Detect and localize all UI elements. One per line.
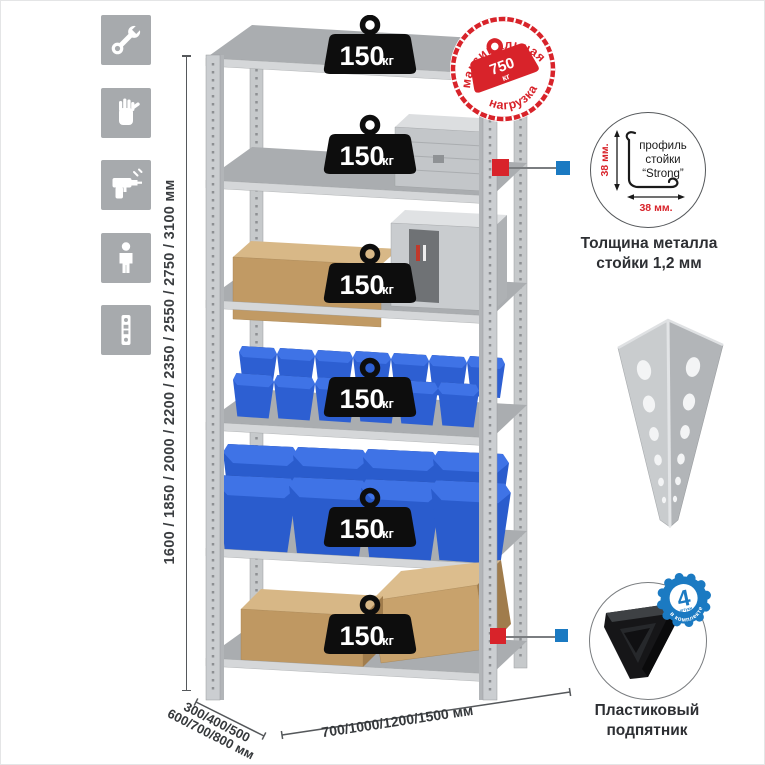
profile-dim-vertical: 38 мм. (599, 143, 611, 176)
callout-line-top (503, 167, 561, 169)
drill-icon (106, 165, 146, 205)
profile-caption-line1: Толщина металла (573, 234, 725, 254)
corner-profile-image (598, 312, 743, 537)
product-infographic-page: { "colors": {"accent_red": "#d8232a", "a… (0, 0, 765, 765)
max-load-stamp: максимальная нагрузка 750 кг (438, 5, 568, 135)
profile-label-1: профиль (639, 140, 687, 152)
base-dimension-annotations: 300/400/500 600/700/800 мм 700/1000/1200… (155, 682, 585, 765)
callout-marker-red-top (492, 159, 509, 176)
weight-value: 150 (339, 384, 384, 414)
weight-value: 150 (339, 621, 384, 651)
weight-badge-1: 150 кг (324, 18, 416, 75)
wrench-icon (106, 20, 146, 60)
weight-unit: кг (382, 526, 395, 541)
callout-marker-blue-top (556, 161, 570, 175)
weight-unit: кг (382, 282, 395, 297)
tile-perforated-profile (101, 305, 151, 355)
profile-label-2: стойки (645, 154, 680, 166)
foot-caption-line2: подпятник (578, 721, 716, 741)
weight-value: 150 (339, 270, 384, 300)
height-dimension-label: 1600 / 1850 / 2000 / 2200 / 2350 / 2550 … (162, 180, 178, 565)
profile-callout-circle: 38 мм. 38 мм. профиль стойки “Strong” (590, 112, 706, 228)
weight-unit: кг (382, 396, 395, 411)
person-icon (106, 238, 146, 278)
profile-cross-section-drawing: 38 мм. 38 мм. профиль стойки “Strong” (591, 113, 705, 227)
weight-unit: кг (382, 633, 395, 648)
weight-value: 150 (339, 514, 384, 544)
profile-label-3: “Strong” (642, 168, 684, 180)
width-dimension-label: 700/1000/1200/1500 мм (320, 702, 474, 740)
weight-value: 150 (339, 141, 384, 171)
tile-wrench (101, 15, 151, 65)
perforated-profile-icon (106, 310, 146, 350)
profile-caption-line2: стойки 1,2 мм (573, 254, 725, 274)
profile-caption: Толщина металла стойки 1,2 мм (573, 234, 725, 274)
height-dimension-line (186, 55, 187, 691)
weight-value: 150 (339, 41, 384, 71)
foot-caption: Пластиковый подпятник (578, 701, 716, 741)
gloves-icon (106, 93, 146, 133)
callout-marker-red-bottom (490, 628, 506, 644)
included-quantity-badge: 4 штуки в комплекте (656, 572, 712, 628)
width-label: 700/1000/1200/1500 мм (320, 702, 474, 740)
weight-unit: кг (382, 153, 395, 168)
tile-person (101, 233, 151, 283)
weight-unit: кг (382, 53, 395, 68)
callout-line-bottom (500, 636, 558, 638)
tile-drill (101, 160, 151, 210)
callout-marker-blue-bottom (555, 629, 568, 642)
profile-dim-horizontal: 38 мм. (639, 202, 672, 214)
foot-caption-line1: Пластиковый (578, 701, 716, 721)
tile-gloves (101, 88, 151, 138)
